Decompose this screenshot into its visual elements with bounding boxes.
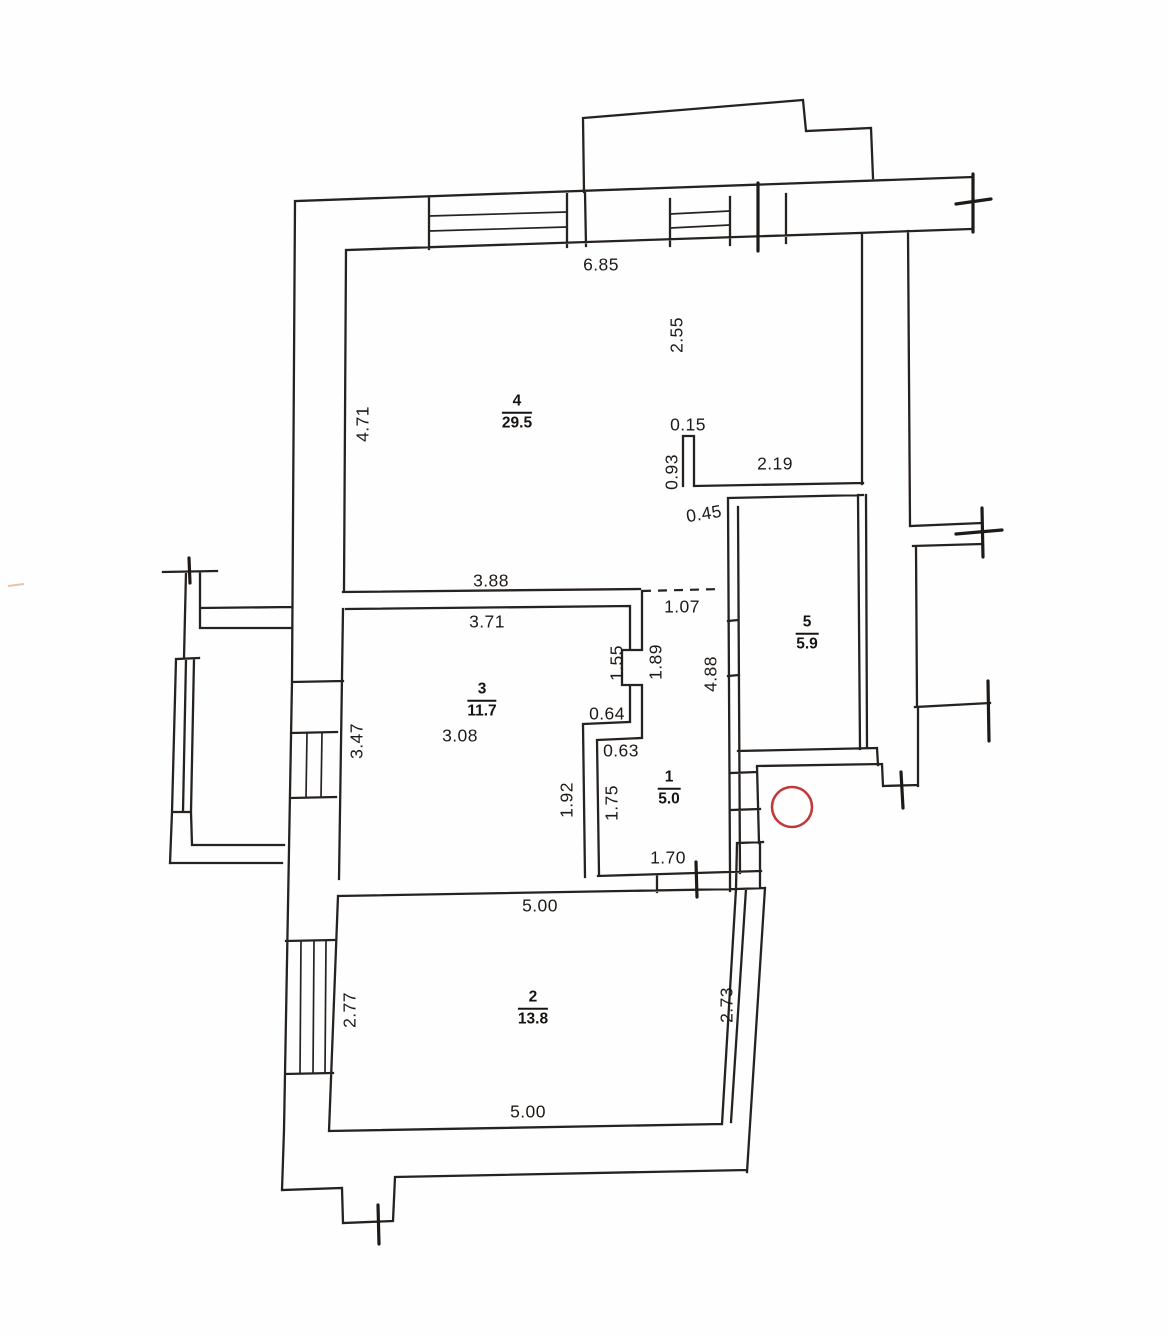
floor-plan-page: 4 29.5 3 11.7 1 5.0 5 5.9 2 13.8 6.85 0.… [0, 0, 1168, 1335]
room-5-area: 5.9 [796, 635, 819, 653]
dim-label-3-47: 3.47 [347, 723, 368, 759]
dim-label-2-73: 2.73 [717, 987, 738, 1023]
dim-label-1-75: 1.75 [602, 785, 623, 821]
room-3-area: 11.7 [467, 702, 496, 720]
room-label-1: 1 5.0 [658, 770, 681, 809]
window-pane-lines [300, 211, 730, 1074]
wall-lines [163, 100, 990, 1223]
dim-label-0-15: 0.15 [670, 415, 706, 436]
room-1-area: 5.0 [658, 790, 681, 808]
scan-artifact [8, 584, 24, 586]
dim-label-3-88: 3.88 [473, 571, 509, 592]
dim-label-2-77: 2.77 [340, 992, 361, 1028]
room-2-area: 13.8 [518, 1010, 548, 1028]
dim-label-3-08: 3.08 [442, 726, 478, 747]
dim-label-1-70: 1.70 [650, 848, 686, 869]
dim-label-5-00-bottom: 5.00 [510, 1102, 546, 1123]
room-3-number: 3 [467, 682, 496, 702]
room-label-5: 5 5.9 [796, 615, 819, 654]
room-label-4: 4 29.5 [502, 394, 532, 433]
dim-label-0-93: 0.93 [662, 454, 683, 490]
room-label-3: 3 11.7 [467, 682, 496, 721]
dim-label-2-55: 2.55 [667, 317, 688, 353]
dim-label-3-71: 3.71 [469, 612, 505, 633]
dim-label-1-92: 1.92 [557, 782, 578, 818]
dim-label-1-07: 1.07 [664, 597, 700, 618]
room-label-2: 2 13.8 [518, 990, 548, 1029]
dim-label-1-89: 1.89 [646, 644, 667, 680]
dim-label-0-64: 0.64 [589, 704, 625, 725]
dim-label-4-88: 4.88 [701, 656, 722, 692]
room-4-number: 4 [502, 394, 532, 414]
dashed-opening-line [642, 589, 722, 591]
dim-label-6-85: 6.85 [583, 255, 619, 276]
dim-label-4-71: 4.71 [353, 406, 374, 442]
stamp-circle [772, 787, 812, 827]
dim-label-1-55: 1.55 [607, 645, 628, 681]
room-5-number: 5 [796, 615, 819, 635]
floor-plan-drawing [0, 0, 1168, 1335]
room-1-number: 1 [658, 770, 681, 790]
room-4-area: 29.5 [502, 414, 532, 432]
dim-label-2-19: 2.19 [757, 454, 793, 475]
dim-label-0-63: 0.63 [603, 741, 639, 762]
dim-label-5-00-top: 5.00 [522, 896, 558, 917]
room-2-number: 2 [518, 990, 548, 1010]
